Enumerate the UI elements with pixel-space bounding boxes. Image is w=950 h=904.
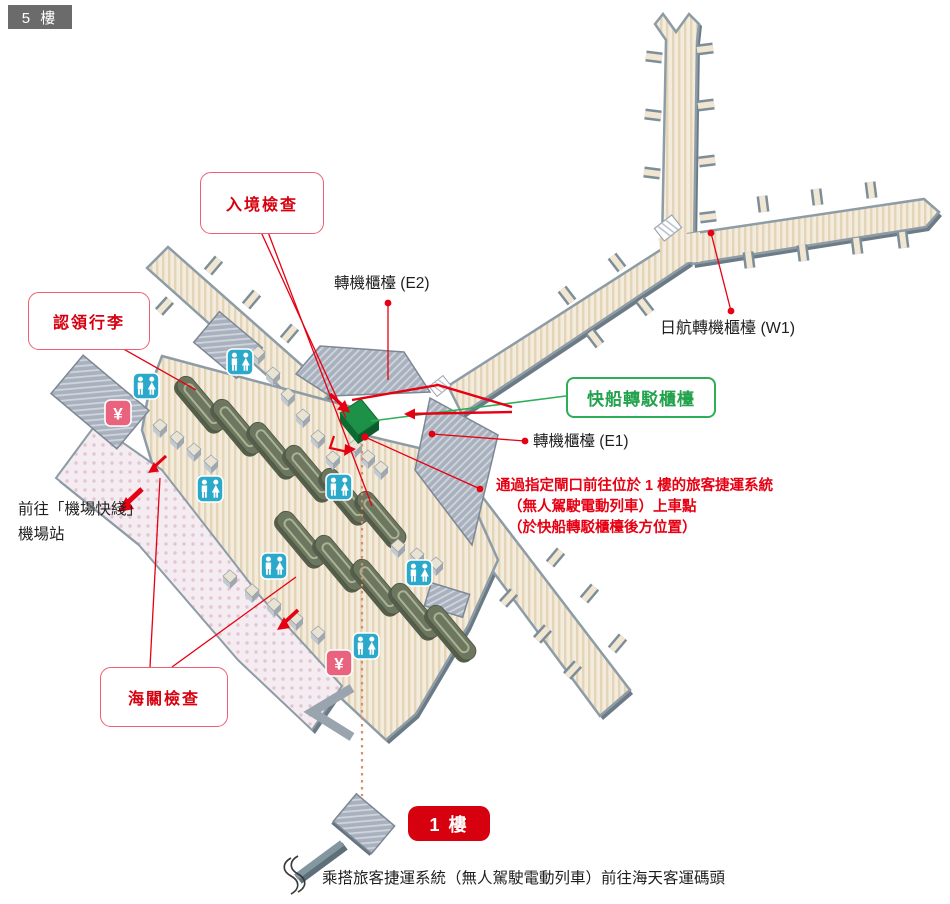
immigration-label: 入境檢查 bbox=[200, 172, 324, 234]
jal-transfer-w1-label: 日航轉機櫃檯 (W1) bbox=[660, 314, 795, 338]
toilet-icon bbox=[261, 553, 287, 579]
north-pier-corridor bbox=[655, 14, 699, 244]
bottom-note: 乘搭旅客捷運系統（無人駕駛電動列車）前往海天客運碼頭 bbox=[322, 866, 725, 888]
apm-note-line1: 通過指定閘口前往位於 1 樓的旅客捷運系統 bbox=[496, 476, 773, 497]
baggage-claim-label: 認領行李 bbox=[28, 292, 150, 350]
airport-floor-map-page: ¥ bbox=[0, 0, 950, 904]
toilet-icon bbox=[133, 373, 159, 399]
toilet-icon bbox=[326, 474, 352, 500]
east-pier-corridor bbox=[688, 199, 939, 264]
toilet-icon bbox=[406, 560, 432, 586]
floor-1-badge: 1 樓 bbox=[408, 806, 490, 841]
apm-note-line2: （無人駕駛電動列車）上車點 bbox=[508, 497, 773, 518]
airport-express-label: 前往「機場快綫」 機場站 bbox=[18, 497, 142, 547]
apm-note-line3: （於快船轉駁櫃檯後方位置） bbox=[508, 518, 773, 539]
currency-exchange-icon bbox=[105, 400, 131, 426]
ferry-transfer-label: 快船轉駁櫃檯 bbox=[566, 377, 716, 418]
terminal-map-svg: ¥ bbox=[0, 0, 950, 904]
airport-express-line2: 機場站 bbox=[18, 522, 142, 547]
floor-5-badge: 5 樓 bbox=[8, 5, 72, 29]
apm-note: 通過指定閘口前往位於 1 樓的旅客捷運系統 （無人駕駛電動列車）上車點 （於快船… bbox=[496, 476, 773, 539]
toilet-icon bbox=[197, 476, 223, 502]
customs-label: 海關檢查 bbox=[100, 667, 228, 727]
transfer-e1-label: 轉機櫃檯 (E1) bbox=[533, 429, 629, 451]
transfer-e2-label: 轉機櫃檯 (E2) bbox=[334, 271, 430, 293]
currency-exchange-icon bbox=[326, 650, 352, 676]
toilet-icon bbox=[353, 633, 379, 659]
west-building bbox=[51, 355, 149, 449]
toilet-icon bbox=[227, 349, 253, 375]
airport-express-line1: 前往「機場快綫」 bbox=[18, 497, 142, 522]
